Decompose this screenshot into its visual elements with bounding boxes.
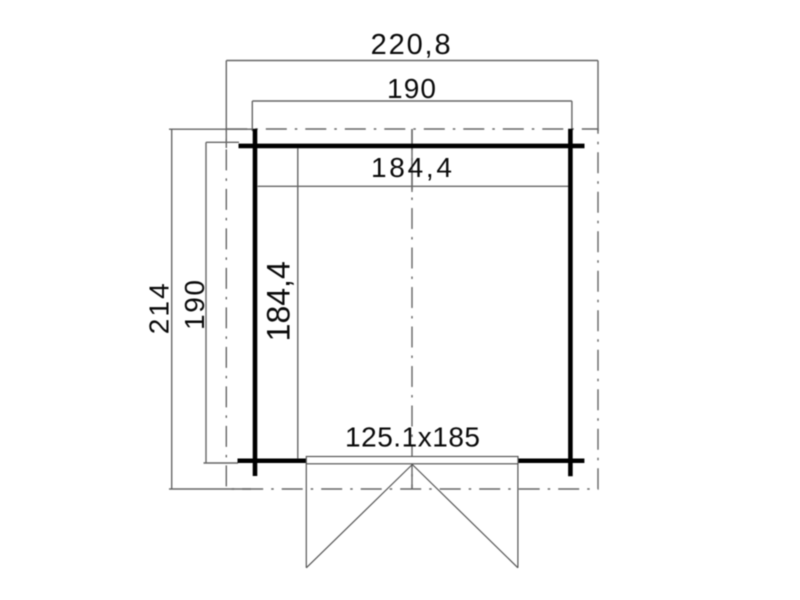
svg-text:184,4: 184,4	[371, 152, 452, 183]
svg-text:214: 214	[143, 283, 174, 334]
svg-text:220,8: 220,8	[371, 29, 451, 61]
svg-text:125.1x185: 125.1x185	[345, 421, 480, 452]
svg-text:184,4: 184,4	[261, 261, 297, 341]
svg-text:190: 190	[179, 280, 210, 330]
svg-text:190: 190	[387, 73, 436, 104]
